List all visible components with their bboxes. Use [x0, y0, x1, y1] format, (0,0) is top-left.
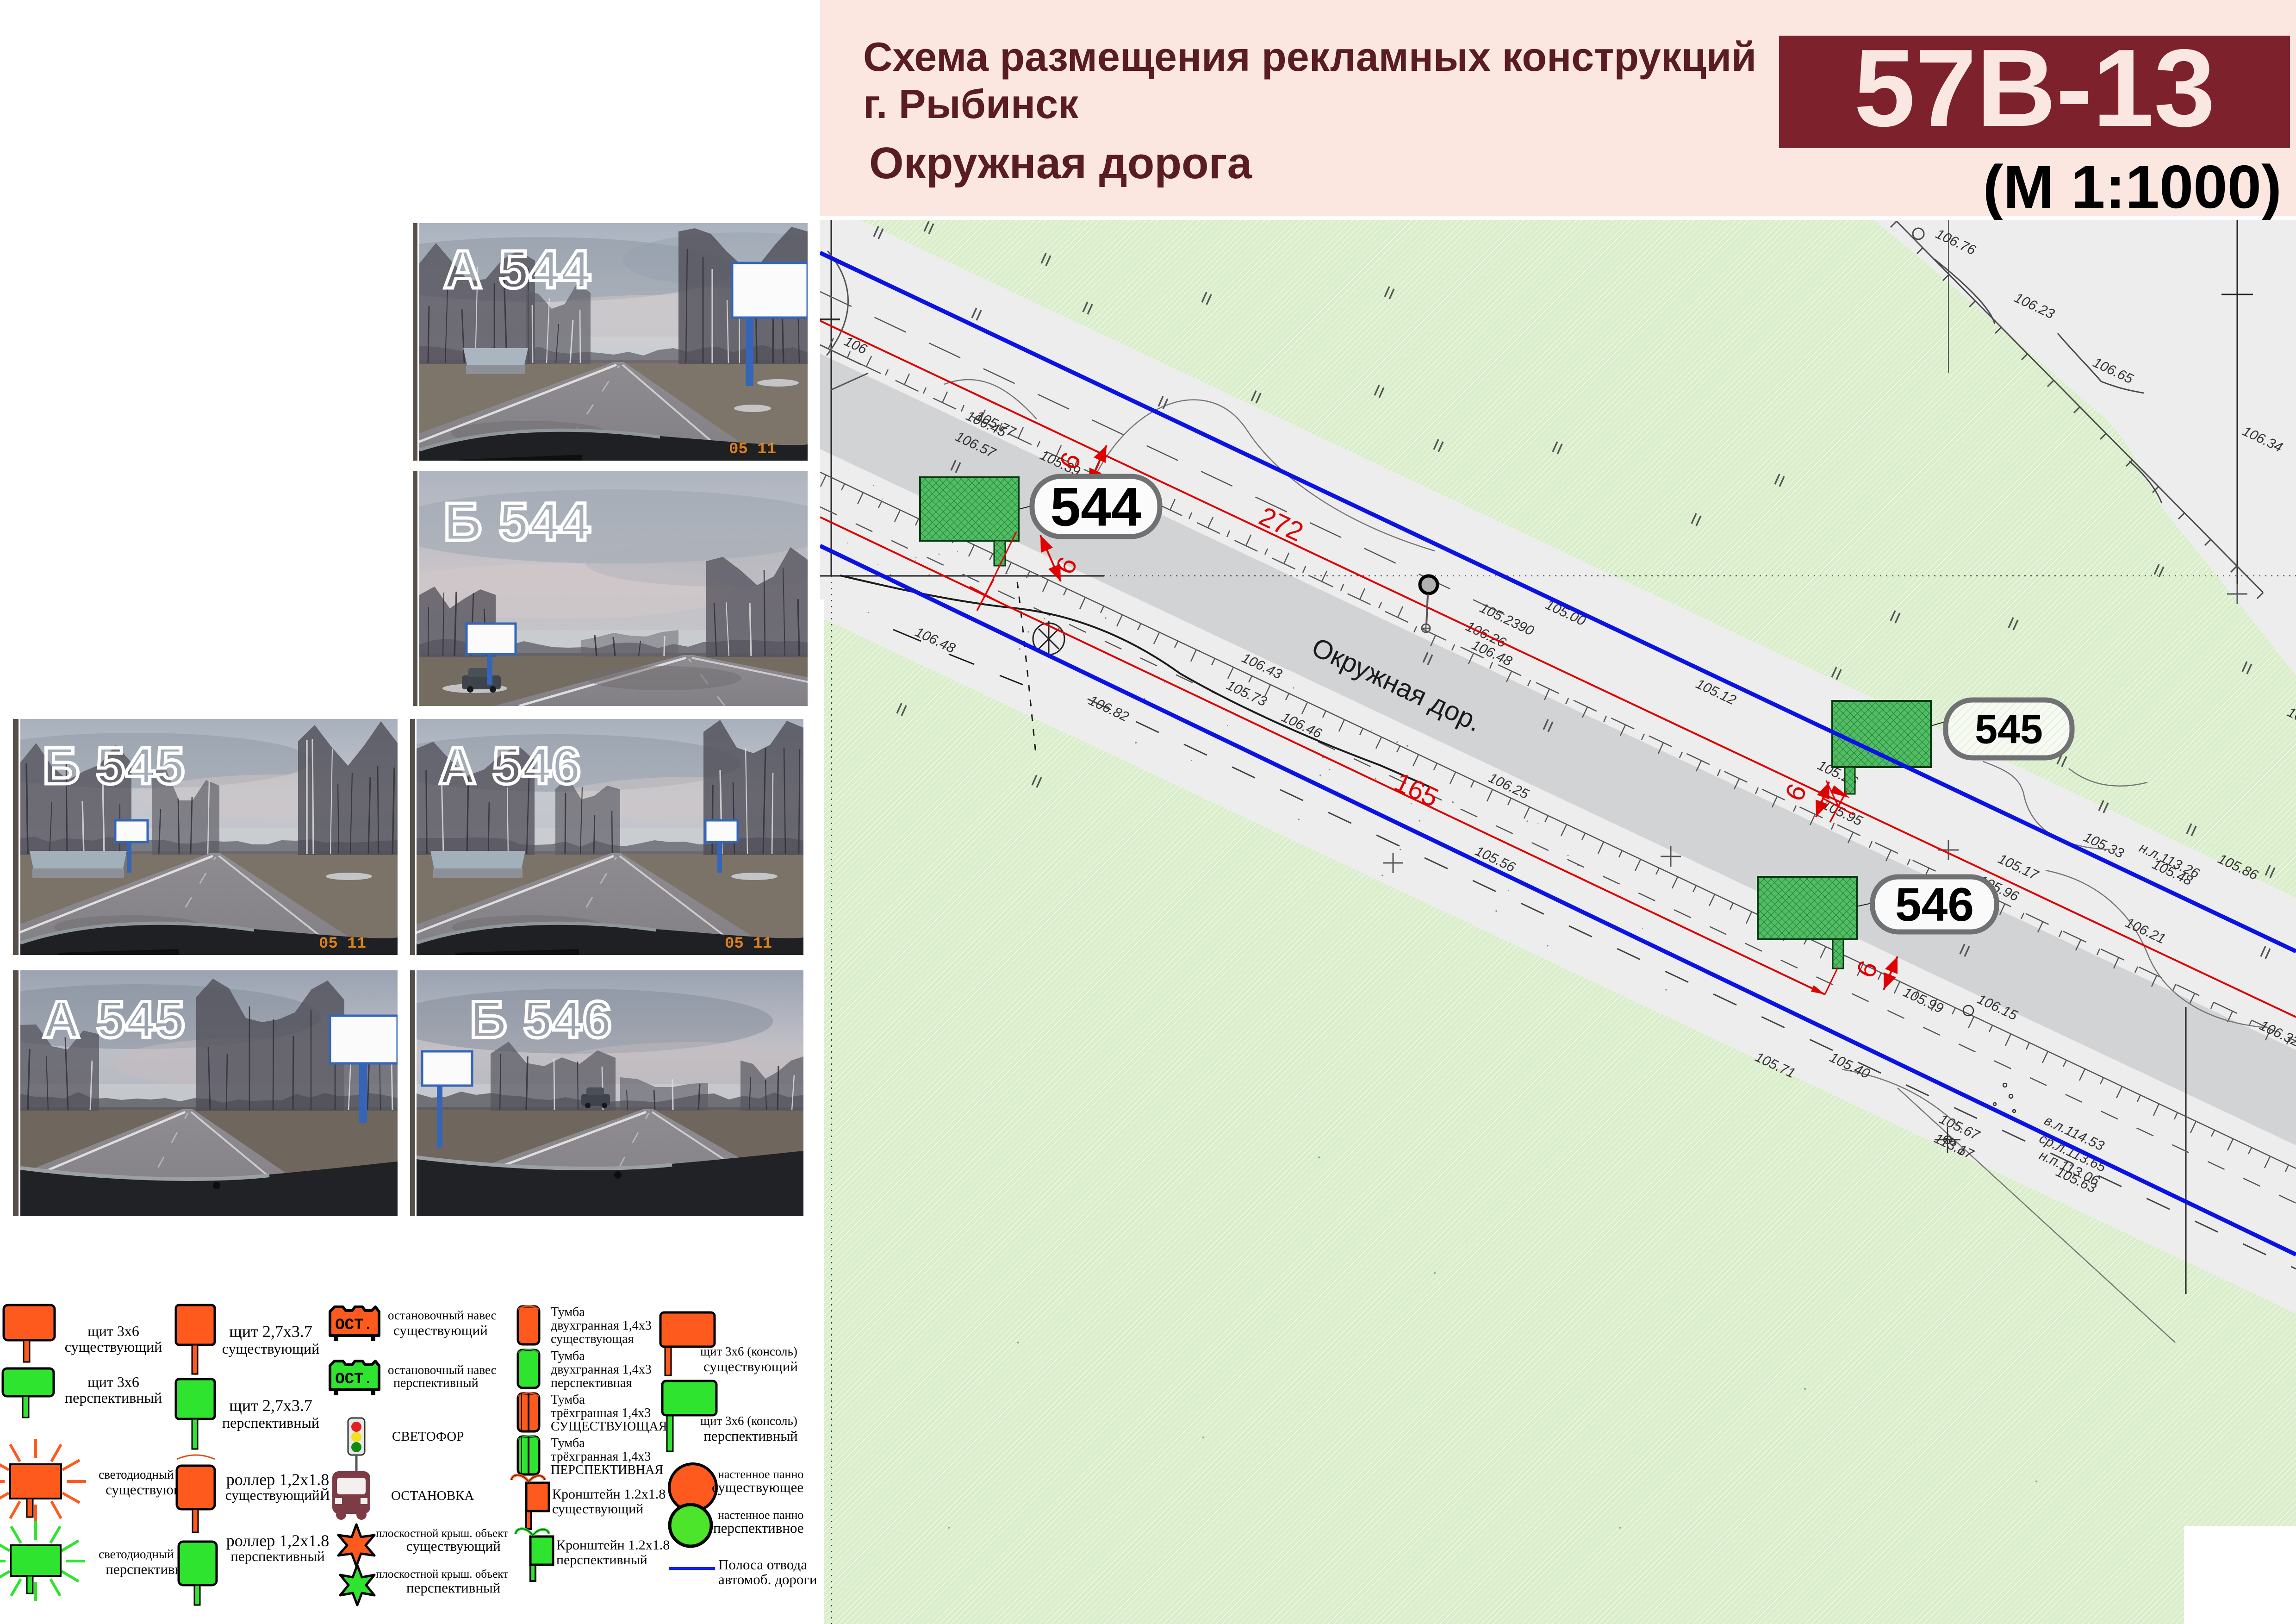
svg-text:перспективный: перспективный: [703, 1428, 797, 1444]
svg-text:щит 3х6 (консоль): щит 3х6 (консоль): [700, 1414, 797, 1428]
svg-text:перспективный: перспективный: [230, 1548, 324, 1564]
svg-text:Тумба: Тумба: [551, 1305, 585, 1319]
svg-text:щит 2,7х3.7: щит 2,7х3.7: [229, 1322, 312, 1341]
svg-text:плоскостной крыш. объект: плоскостной крыш. объект: [376, 1568, 508, 1580]
svg-text:СВЕТОФОР: СВЕТОФОР: [392, 1429, 464, 1444]
svg-text:двухгранная 1,4х3: двухгранная 1,4х3: [551, 1318, 652, 1333]
svg-text:СУЩЕСТВУЮЩАЯ: СУЩЕСТВУЮЩАЯ: [551, 1419, 667, 1434]
svg-text:545: 545: [1975, 706, 2043, 752]
svg-text:существующая: существующая: [551, 1332, 634, 1346]
svg-text:А 546: А 546: [439, 737, 582, 795]
svg-text:трёхгранная 1,4х3: трёхгранная 1,4х3: [551, 1406, 651, 1420]
svg-text:роллер 1,2х1.8: роллер 1,2х1.8: [226, 1470, 329, 1489]
svg-text:двухгранная 1,4х3: двухгранная 1,4х3: [551, 1362, 652, 1377]
svg-text:Тумба: Тумба: [551, 1349, 585, 1363]
svg-text:перспективное: перспективное: [713, 1520, 804, 1536]
svg-text:Б 544: Б 544: [443, 492, 591, 552]
svg-text:ОСТАНОВКА: ОСТАНОВКА: [391, 1488, 474, 1503]
svg-text:перспективный: перспективный: [65, 1389, 162, 1406]
svg-text:щит 3х6: щит 3х6: [87, 1323, 139, 1339]
svg-text:544: 544: [1051, 476, 1142, 537]
svg-text:Кронштейн 1.2х1.8: Кронштейн 1.2х1.8: [556, 1537, 670, 1553]
svg-text:05 11: 05 11: [725, 935, 772, 953]
svg-text:Б 545: Б 545: [43, 737, 185, 795]
svg-text:Кронштейн 1.2х1.8: Кронштейн 1.2х1.8: [552, 1487, 666, 1502]
svg-text:перспективная: перспективная: [551, 1376, 632, 1390]
svg-text:существующий: существующий: [65, 1338, 162, 1355]
svg-text:остановочный навес: остановочный навес: [388, 1363, 497, 1377]
svg-text:Б 546: Б 546: [470, 991, 612, 1049]
svg-text:существующий: существующий: [406, 1538, 501, 1554]
svg-text:А 545: А 545: [43, 991, 186, 1049]
svg-text:перспективный: перспективный: [222, 1414, 319, 1431]
svg-text:Полоса отвода: Полоса отвода: [718, 1556, 807, 1573]
svg-text:щит 2,7х3.7: щит 2,7х3.7: [229, 1396, 312, 1415]
svg-text:05 11: 05 11: [319, 935, 366, 953]
svg-text:автомоб. дороги: автомоб. дороги: [718, 1571, 817, 1587]
svg-text:ОСТ.: ОСТ.: [335, 1317, 373, 1334]
svg-text:Тумба: Тумба: [551, 1393, 585, 1407]
svg-text:существующее: существующее: [712, 1479, 803, 1495]
svg-text:трёхгранная 1,4х3: трёхгранная 1,4х3: [551, 1449, 651, 1464]
svg-text:А 544: А 544: [443, 239, 591, 300]
svg-text:существующий: существующий: [222, 1340, 319, 1357]
svg-text:существующий: существующий: [393, 1322, 488, 1338]
svg-text:существующий: существующий: [703, 1358, 798, 1374]
svg-text:ОСТ.: ОСТ.: [335, 1371, 373, 1388]
svg-text:существующий: существующий: [552, 1501, 643, 1517]
svg-text:Тумба: Тумба: [551, 1436, 585, 1450]
svg-text:ПЕРСПЕКТИВНАЯ: ПЕРСПЕКТИВНАЯ: [551, 1463, 663, 1477]
svg-text:щит 3х6 (консоль): щит 3х6 (консоль): [700, 1344, 797, 1358]
svg-text:05 11: 05 11: [729, 441, 776, 458]
svg-text:546: 546: [1895, 878, 1974, 931]
svg-text:перспективный: перспективный: [556, 1552, 647, 1568]
svg-text:роллер 1,2х1.8: роллер 1,2х1.8: [226, 1531, 329, 1550]
svg-text:перспективный: перспективный: [406, 1580, 500, 1596]
svg-text:остановочный навес: остановочный навес: [388, 1308, 497, 1322]
svg-text:существующийЙ: существующийЙ: [225, 1487, 330, 1503]
svg-text:щит 3х6: щит 3х6: [87, 1374, 139, 1390]
svg-text:перспективный: перспективный: [393, 1376, 479, 1390]
